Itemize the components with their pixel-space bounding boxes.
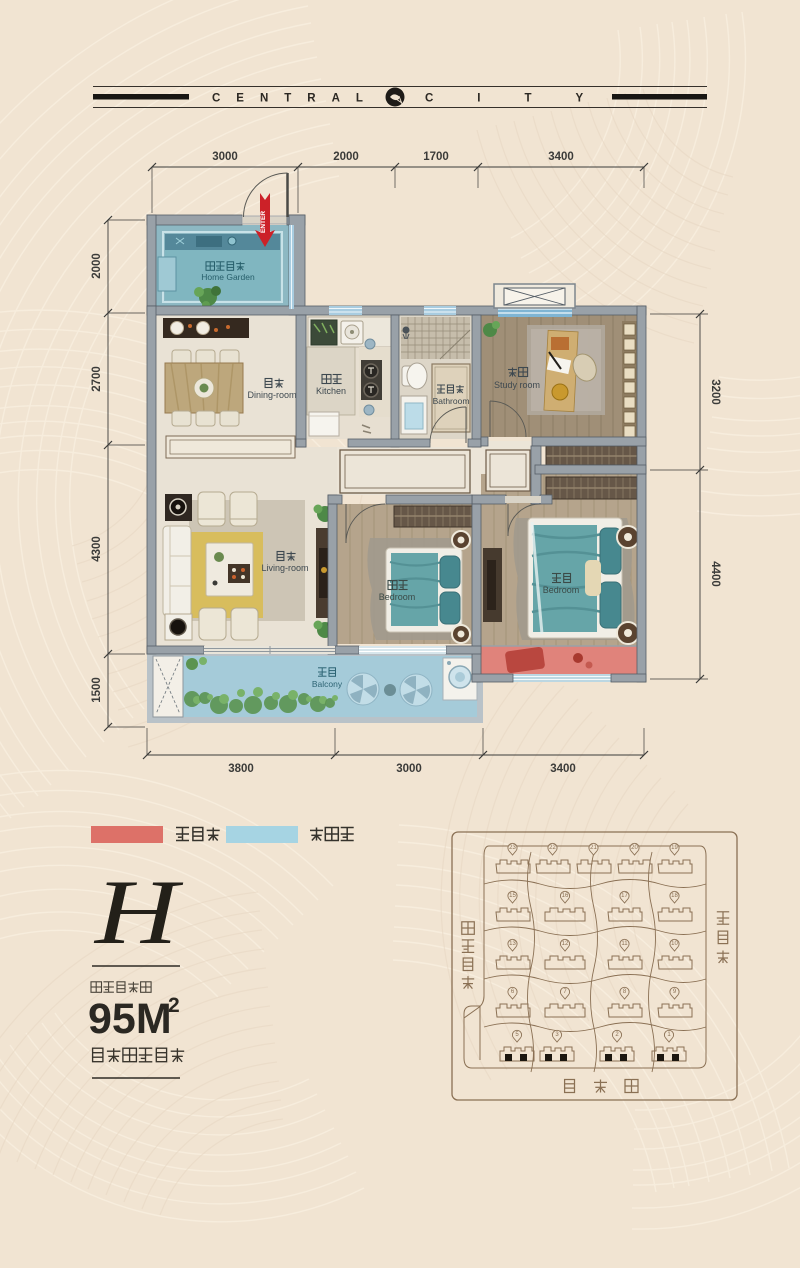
svg-text:2000: 2000 bbox=[333, 151, 359, 163]
svg-text:1500: 1500 bbox=[91, 677, 103, 703]
svg-text:CITY: CITY bbox=[425, 93, 627, 105]
svg-text:95M: 95M bbox=[88, 995, 172, 1043]
svg-text:3400: 3400 bbox=[548, 151, 574, 163]
svg-text:18: 18 bbox=[671, 893, 678, 899]
svg-text:22: 22 bbox=[549, 845, 556, 851]
svg-text:20: 20 bbox=[631, 845, 638, 851]
svg-text:3000: 3000 bbox=[396, 763, 422, 775]
svg-text:11: 11 bbox=[621, 941, 628, 947]
svg-text:15: 15 bbox=[509, 893, 516, 899]
svg-text:Home Garden: Home Garden bbox=[201, 272, 255, 282]
svg-text:3800: 3800 bbox=[228, 763, 254, 775]
svg-text:17: 17 bbox=[621, 893, 628, 899]
svg-text:3400: 3400 bbox=[550, 763, 576, 775]
svg-text:Kitchen: Kitchen bbox=[316, 386, 346, 396]
svg-text:Bedroom: Bedroom bbox=[543, 585, 580, 595]
svg-text:12: 12 bbox=[562, 941, 569, 947]
svg-text:19: 19 bbox=[671, 845, 678, 851]
svg-text:4400: 4400 bbox=[709, 561, 721, 587]
svg-text:Living-room: Living-room bbox=[261, 563, 308, 573]
svg-text:Bedroom: Bedroom bbox=[379, 592, 416, 602]
svg-text:21: 21 bbox=[590, 845, 597, 851]
svg-text:23: 23 bbox=[509, 845, 516, 851]
svg-text:4300: 4300 bbox=[91, 536, 103, 562]
svg-text:2: 2 bbox=[168, 994, 180, 1017]
svg-text:1700: 1700 bbox=[423, 151, 449, 163]
svg-text:Bathroom: Bathroom bbox=[433, 396, 470, 406]
svg-text:2700: 2700 bbox=[91, 366, 103, 392]
svg-text:Study room: Study room bbox=[494, 380, 540, 390]
svg-text:10: 10 bbox=[671, 941, 678, 947]
svg-text:CENTRAL: CENTRAL bbox=[212, 93, 379, 105]
svg-text:2000: 2000 bbox=[91, 253, 103, 279]
svg-text:3000: 3000 bbox=[212, 151, 238, 163]
svg-text:16: 16 bbox=[562, 893, 569, 899]
svg-text:13: 13 bbox=[509, 941, 516, 947]
svg-text:ENTER: ENTER bbox=[260, 211, 267, 233]
svg-text:Balcony: Balcony bbox=[312, 679, 343, 689]
svg-text:Dining-room: Dining-room bbox=[247, 390, 296, 400]
svg-text:3200: 3200 bbox=[709, 379, 721, 405]
svg-text:H: H bbox=[93, 861, 184, 963]
